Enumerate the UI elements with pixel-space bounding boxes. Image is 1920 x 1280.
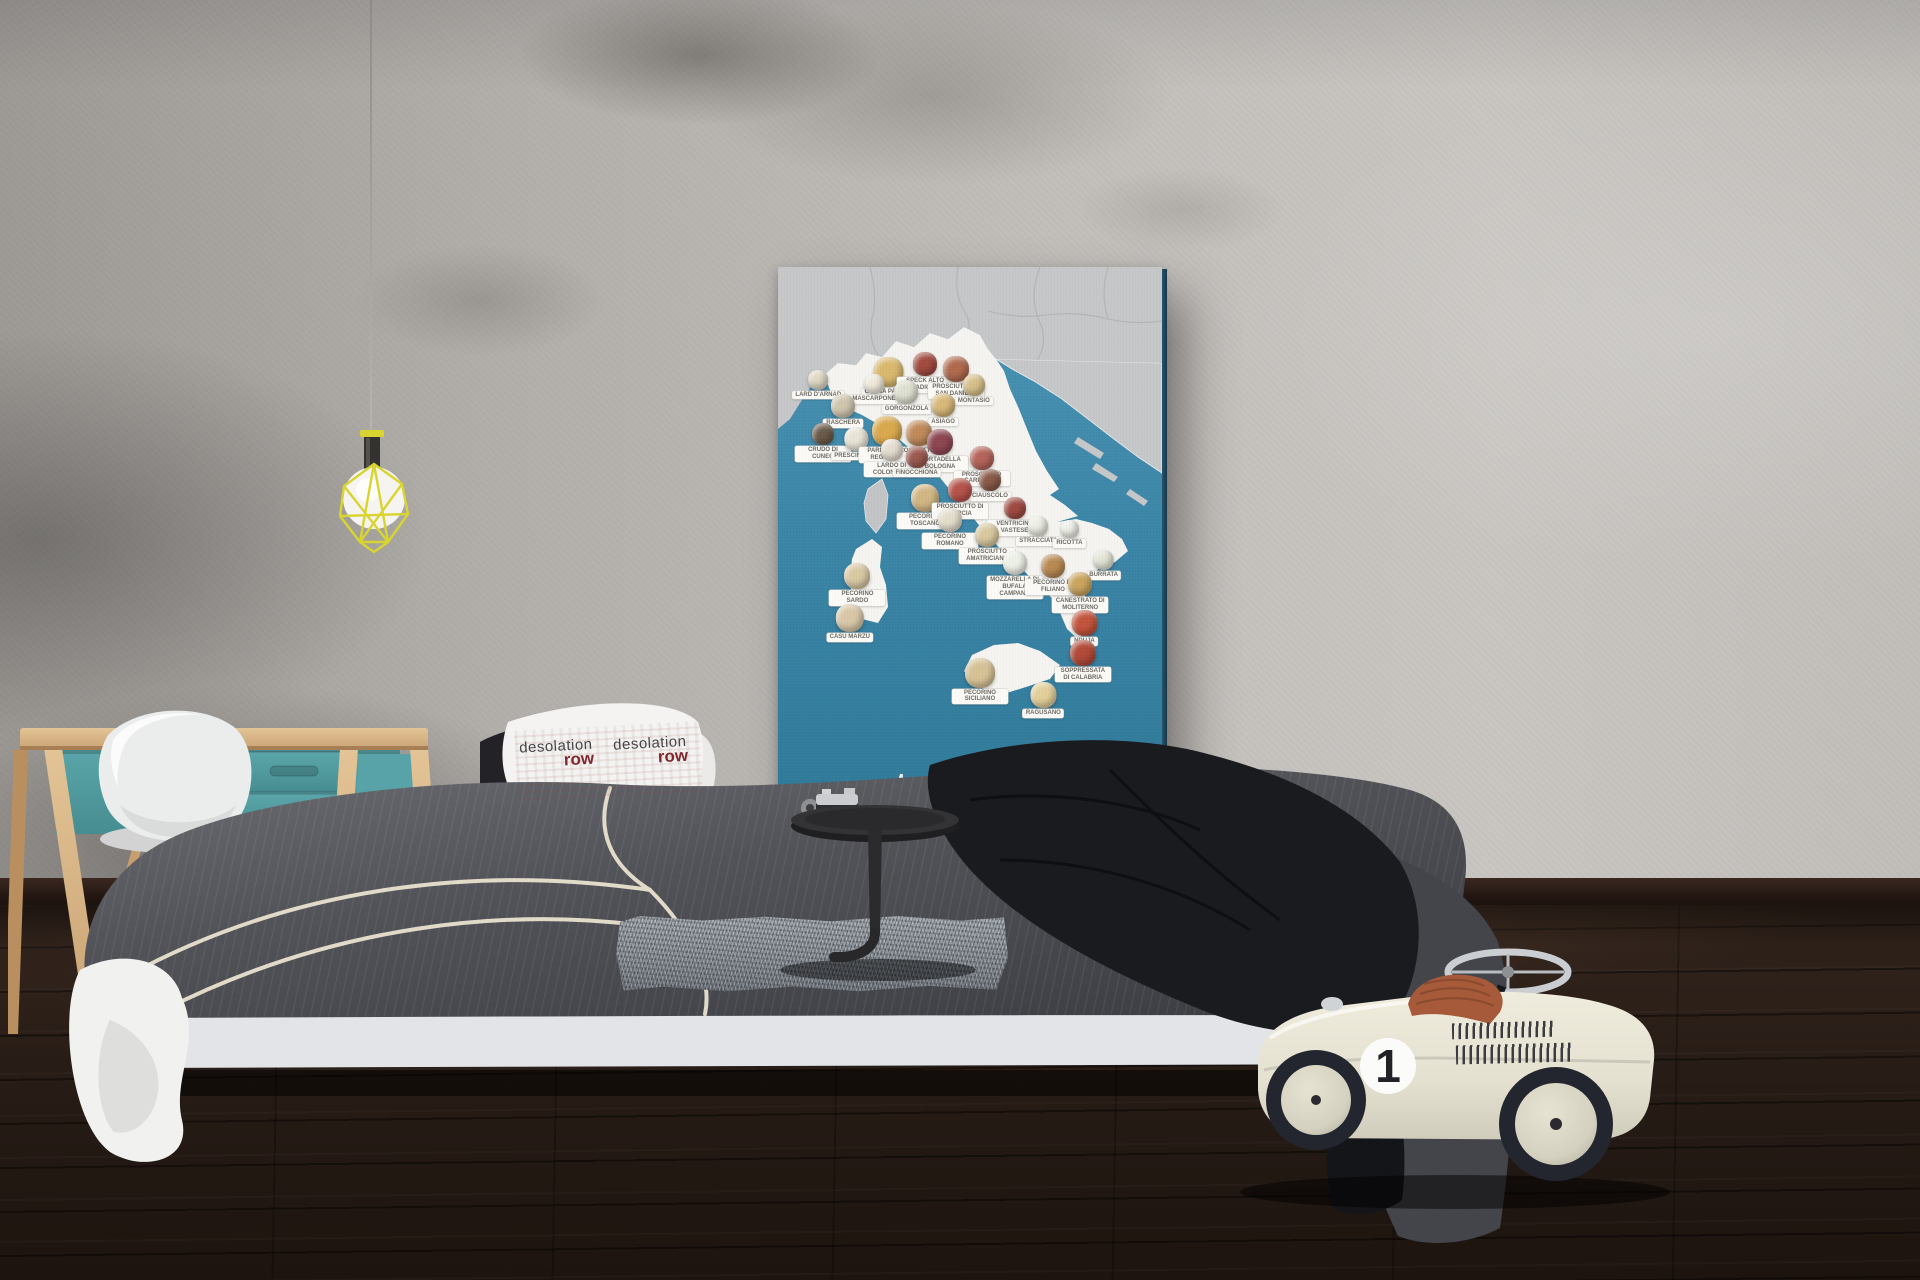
car-vent-slats	[1456, 1042, 1574, 1064]
hood-cap	[1321, 997, 1343, 1011]
pillow-word-row: row	[658, 749, 689, 765]
front-hub-center	[1311, 1095, 1321, 1105]
pillow-word-row: row	[564, 752, 595, 768]
steering-hub	[1502, 966, 1514, 978]
car-number: 1	[1375, 1040, 1401, 1092]
rear-hub-center	[1550, 1118, 1562, 1130]
pillow-print-group: desolation row	[613, 734, 689, 767]
desk-rear-left-leg	[8, 750, 28, 1034]
pillow-print: desolation row desolation row	[514, 721, 702, 801]
table-top-surface	[805, 808, 945, 830]
lamp-cap	[360, 430, 384, 437]
lamp-cord	[370, 0, 372, 438]
camera-flash-shoe	[844, 788, 855, 794]
car-shadow	[1240, 1175, 1670, 1209]
car-vent-slats	[1452, 1021, 1556, 1040]
table-foot	[834, 932, 875, 957]
pendant-lamp-icon	[330, 424, 434, 560]
table-shadow	[780, 959, 976, 981]
table-column	[868, 830, 882, 934]
toy-race-car: 1	[1240, 920, 1680, 1230]
side-table	[758, 786, 1028, 996]
camera-top-plate	[816, 794, 858, 805]
pillow-print-group: desolation row	[519, 737, 595, 770]
bedroom-scene: LARD D'ARNAD GRANA PADANO SPECK ALTO ADI…	[0, 0, 1920, 1280]
lamp-socket-highlight	[366, 438, 370, 468]
